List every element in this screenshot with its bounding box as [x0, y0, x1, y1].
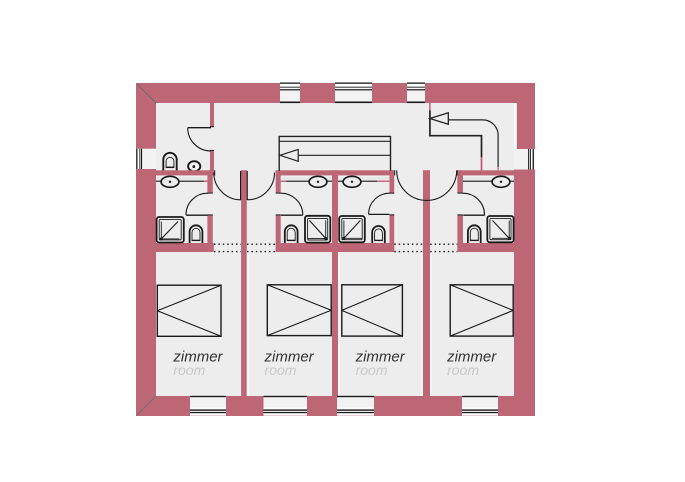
- svg-text:room: room: [356, 362, 388, 378]
- svg-text:room: room: [265, 362, 297, 378]
- svg-text:room: room: [173, 362, 205, 378]
- svg-text:room: room: [447, 362, 479, 378]
